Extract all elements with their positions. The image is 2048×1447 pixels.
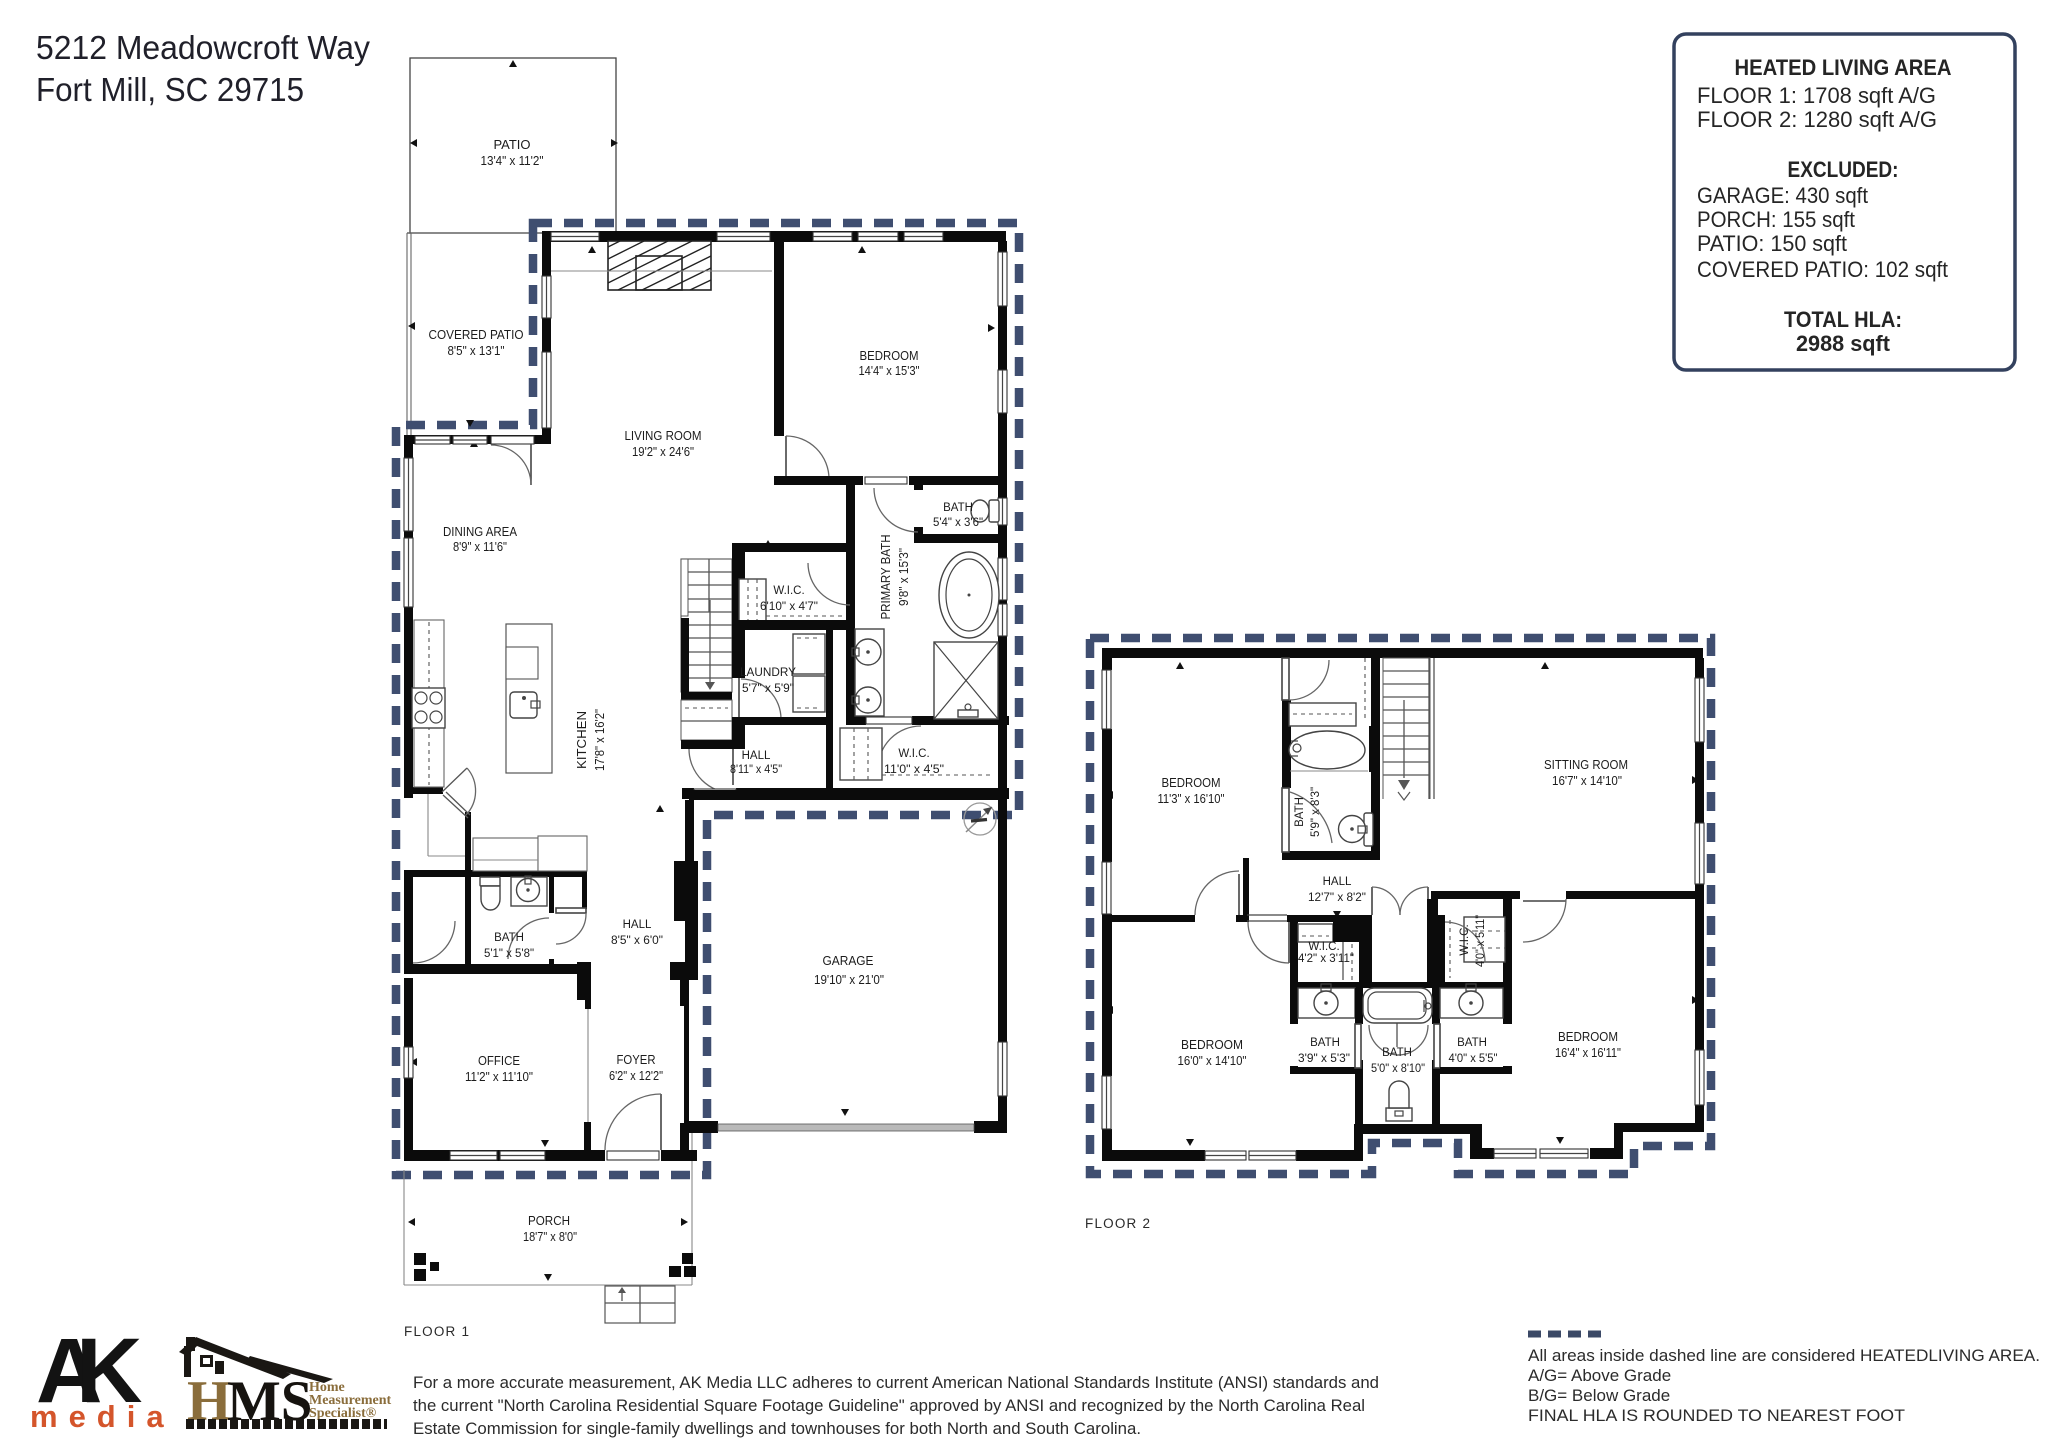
svg-text:BEDROOM: BEDROOM bbox=[1162, 775, 1221, 790]
svg-text:5'7" x 5'9": 5'7" x 5'9" bbox=[742, 683, 794, 695]
svg-text:16'4" x 16'11": 16'4" x 16'11" bbox=[1555, 1046, 1621, 1060]
svg-text:PORCH: PORCH bbox=[528, 1213, 570, 1228]
svg-text:16'7" x 14'10": 16'7" x 14'10" bbox=[1552, 774, 1622, 788]
svg-text:19'10" x 21'0": 19'10" x 21'0" bbox=[814, 973, 884, 987]
svg-text:FINAL HLA IS ROUNDED TO NEARES: FINAL HLA IS ROUNDED TO NEAREST FOOT bbox=[1528, 1406, 1905, 1425]
svg-text:A/G= Above Grade: A/G= Above Grade bbox=[1528, 1366, 1671, 1385]
svg-text:6'2" x 12'2": 6'2" x 12'2" bbox=[609, 1069, 663, 1083]
svg-text:Fort Mill, SC 29715: Fort Mill, SC 29715 bbox=[36, 71, 304, 108]
svg-text:FLOOR 1: FLOOR 1 bbox=[404, 1324, 470, 1339]
svg-text:FLOOR 1: 1708 sqft A/G: FLOOR 1: 1708 sqft A/G bbox=[1697, 83, 1936, 108]
svg-text:W.I.C.: W.I.C. bbox=[773, 585, 804, 597]
svg-text:COVERED PATIO: COVERED PATIO bbox=[429, 327, 524, 342]
svg-text:BEDROOM: BEDROOM bbox=[1181, 1037, 1243, 1052]
svg-text:17'8" x 16'2": 17'8" x 16'2" bbox=[593, 709, 607, 771]
svg-text:GARAGE: 430 sqft: GARAGE: 430 sqft bbox=[1697, 183, 1869, 208]
svg-text:13'4" x 11'2": 13'4" x 11'2" bbox=[481, 154, 544, 168]
svg-text:HEATED LIVING AREA: HEATED LIVING AREA bbox=[1735, 55, 1952, 80]
svg-text:11'3" x 16'10": 11'3" x 16'10" bbox=[1158, 792, 1225, 806]
svg-text:4'0" x 5'5": 4'0" x 5'5" bbox=[1449, 1053, 1498, 1065]
svg-text:TOTAL HLA:: TOTAL HLA: bbox=[1784, 307, 1902, 332]
svg-text:8'5" x 6'0": 8'5" x 6'0" bbox=[611, 935, 663, 947]
svg-text:HALL: HALL bbox=[742, 750, 771, 762]
svg-text:4'0" x 5'11": 4'0" x 5'11" bbox=[1475, 915, 1487, 967]
svg-text:BATH: BATH bbox=[943, 502, 973, 514]
svg-text:W.I.C.: W.I.C. bbox=[1308, 941, 1339, 953]
svg-text:GARAGE: GARAGE bbox=[823, 953, 874, 968]
svg-text:BATH: BATH bbox=[1310, 1037, 1340, 1049]
svg-text:B/G= Below Grade: B/G= Below Grade bbox=[1528, 1386, 1670, 1405]
svg-text:All areas inside dashed line a: All areas inside dashed line are conside… bbox=[1528, 1346, 2040, 1365]
svg-text:16'0" x 14'10": 16'0" x 14'10" bbox=[1178, 1054, 1247, 1068]
svg-text:PATIO: 150 sqft: PATIO: 150 sqft bbox=[1697, 231, 1848, 256]
svg-text:4'2" x 3'11": 4'2" x 3'11" bbox=[1298, 953, 1354, 965]
svg-text:LIVING ROOM: LIVING ROOM bbox=[625, 428, 702, 443]
svg-text:BEDROOM: BEDROOM bbox=[1558, 1029, 1618, 1044]
svg-text:5'1" x 5'8": 5'1" x 5'8" bbox=[484, 948, 534, 960]
svg-text:18'7" x 8'0": 18'7" x 8'0" bbox=[523, 1230, 577, 1244]
svg-text:5'0" x 8'10": 5'0" x 8'10" bbox=[1371, 1063, 1425, 1075]
svg-text:BATH: BATH bbox=[1382, 1047, 1412, 1059]
svg-text:8'11" x 4'5": 8'11" x 4'5" bbox=[730, 764, 782, 776]
svg-text:the current "North Carolina Re: the current "North Carolina Residential … bbox=[413, 1397, 1365, 1415]
svg-text:SITTING ROOM: SITTING ROOM bbox=[1544, 757, 1628, 772]
svg-text:BATH: BATH bbox=[1457, 1037, 1487, 1049]
svg-text:14'4" x 15'3": 14'4" x 15'3" bbox=[859, 364, 920, 378]
svg-text:5212 Meadowcroft Way: 5212 Meadowcroft Way bbox=[36, 29, 370, 66]
svg-text:FLOOR 2: 1280 sqft A/G: FLOOR 2: 1280 sqft A/G bbox=[1697, 107, 1937, 132]
svg-text:For a more accurate measuremen: For a more accurate measurement, AK Medi… bbox=[413, 1374, 1379, 1392]
svg-text:PATIO: PATIO bbox=[493, 137, 530, 152]
svg-text:KITCHEN: KITCHEN bbox=[574, 711, 589, 769]
svg-text:5'9" x 8'3": 5'9" x 8'3" bbox=[1310, 787, 1322, 837]
svg-text:BATH: BATH bbox=[494, 932, 524, 944]
svg-text:6'10" x 4'7": 6'10" x 4'7" bbox=[760, 601, 818, 613]
svg-text:DINING AREA: DINING AREA bbox=[443, 524, 517, 539]
svg-text:5'4" x 3'6": 5'4" x 3'6" bbox=[933, 517, 983, 529]
svg-text:EXCLUDED:: EXCLUDED: bbox=[1788, 157, 1899, 182]
svg-text:19'2" x 24'6": 19'2" x 24'6" bbox=[632, 445, 694, 459]
svg-text:W.I.C.: W.I.C. bbox=[1459, 924, 1471, 955]
svg-text:media: media bbox=[30, 1399, 175, 1434]
svg-text:11'0" x 4'5": 11'0" x 4'5" bbox=[884, 764, 944, 776]
svg-text:8'5" x 13'1": 8'5" x 13'1" bbox=[448, 344, 505, 358]
svg-text:9'8" x 15'3": 9'8" x 15'3" bbox=[897, 548, 911, 606]
svg-text:BATH: BATH bbox=[1294, 797, 1306, 827]
svg-text:Specialist®: Specialist® bbox=[309, 1406, 377, 1421]
svg-text:11'2" x 11'10": 11'2" x 11'10" bbox=[465, 1070, 533, 1084]
svg-text:2988 sqft: 2988 sqft bbox=[1796, 331, 1890, 356]
svg-text:BEDROOM: BEDROOM bbox=[860, 348, 919, 363]
svg-text:PORCH: 155 sqft: PORCH: 155 sqft bbox=[1697, 207, 1856, 232]
svg-text:FLOOR 2: FLOOR 2 bbox=[1085, 1216, 1151, 1231]
svg-text:HALL: HALL bbox=[623, 919, 652, 931]
svg-text:COVERED PATIO: 102 sqft: COVERED PATIO: 102 sqft bbox=[1697, 257, 1949, 282]
svg-text:12'7" x 8'2": 12'7" x 8'2" bbox=[1308, 892, 1366, 904]
svg-text:Estate Commission for single-f: Estate Commission for single-family dwel… bbox=[413, 1420, 1141, 1438]
svg-text:8'9" x 11'6": 8'9" x 11'6" bbox=[453, 540, 507, 554]
svg-text:LAUNDRY: LAUNDRY bbox=[740, 667, 796, 679]
svg-text:FOYER: FOYER bbox=[617, 1052, 656, 1067]
svg-text:W.I.C.: W.I.C. bbox=[898, 748, 929, 760]
svg-text:PRIMARY BATH: PRIMARY BATH bbox=[878, 535, 893, 620]
svg-text:3'9" x 5'3": 3'9" x 5'3" bbox=[1298, 1053, 1350, 1065]
svg-text:OFFICE: OFFICE bbox=[478, 1053, 520, 1068]
svg-text:HALL: HALL bbox=[1323, 876, 1352, 888]
